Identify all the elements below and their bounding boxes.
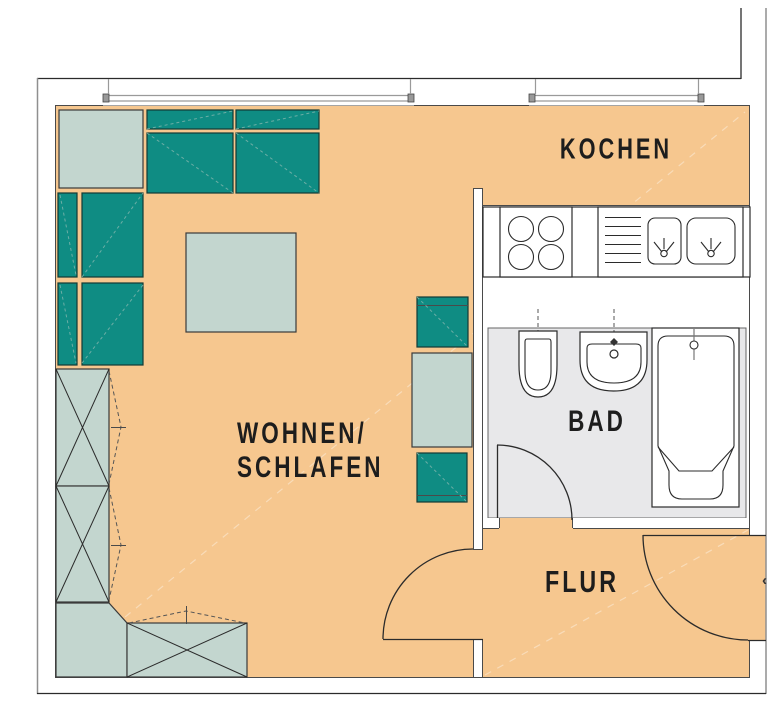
sofa-backrest	[58, 283, 77, 365]
floor-plan: KOCHEN WOHNEN/ SCHLAFEN BAD FLUR ‹	[0, 0, 775, 718]
living-room-label-line1: WOHNEN/	[237, 417, 384, 451]
basin-drain	[610, 350, 618, 358]
kitchen-label: KOCHEN	[560, 134, 672, 167]
corner-table	[59, 110, 143, 188]
living-room-label-line2: SCHLAFEN	[237, 451, 384, 485]
sofa-seat	[147, 133, 233, 193]
bathroom-door-opening	[499, 518, 573, 528]
sink-unit	[598, 207, 743, 277]
windows	[103, 79, 704, 106]
floor-plan-drawing	[0, 0, 775, 718]
coffee-table	[186, 233, 296, 332]
kitchen-counter	[483, 207, 750, 277]
living-room-label: WOHNEN/ SCHLAFEN	[237, 417, 432, 485]
window-kitchen	[529, 79, 704, 106]
hallway-label: FLUR	[545, 564, 619, 600]
sofa-seat	[236, 133, 319, 193]
wardrobe-corner-module	[56, 603, 127, 677]
bathtub	[652, 328, 739, 507]
stove	[500, 207, 572, 277]
entry-direction-marker: ‹	[762, 572, 767, 589]
living-door-opening	[473, 549, 483, 639]
sofa-backrest	[58, 193, 77, 277]
bathroom-label: BAD	[568, 405, 626, 439]
window-living	[103, 79, 414, 106]
sofa-seat	[82, 193, 143, 277]
